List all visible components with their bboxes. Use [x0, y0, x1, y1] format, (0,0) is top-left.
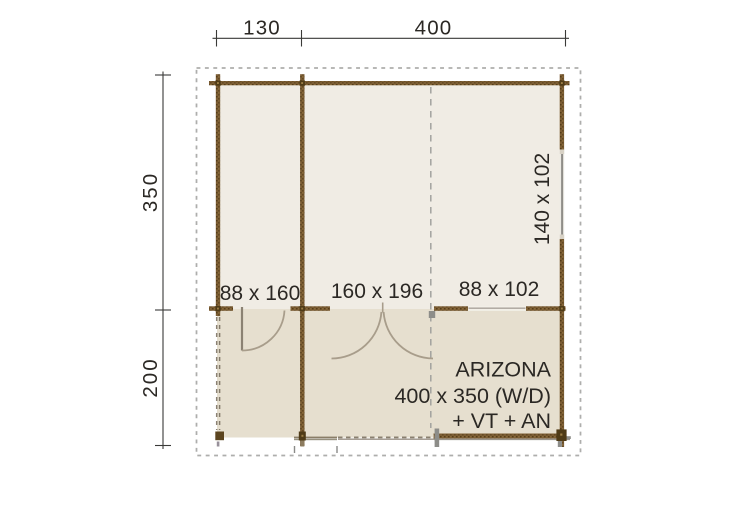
svg-text:88 x 160: 88 x 160 [220, 282, 301, 305]
svg-text:ARIZONA: ARIZONA [455, 358, 551, 382]
svg-text:350: 350 [139, 172, 162, 212]
svg-text:400: 400 [415, 17, 453, 40]
svg-text:130: 130 [243, 17, 281, 40]
svg-text:140 x 102: 140 x 102 [531, 153, 554, 245]
svg-text:400 x 350 (W/D): 400 x 350 (W/D) [394, 384, 551, 408]
svg-text:88 x 102: 88 x 102 [459, 278, 540, 301]
svg-text:200: 200 [139, 357, 162, 397]
svg-text:+ VT + AN: + VT + AN [452, 409, 551, 433]
svg-text:160 x 196: 160 x 196 [331, 280, 423, 303]
